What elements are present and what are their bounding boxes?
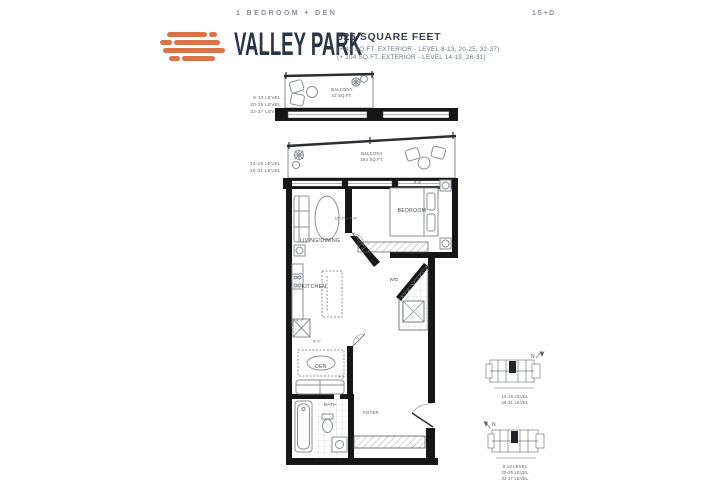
den-label: DEN — [315, 364, 327, 370]
coat-closet — [354, 436, 425, 448]
exterior-note-1: (+ 42 SQ.FT. EXTERIOR - LEVEL 8-13, 20-2… — [337, 46, 567, 53]
laundry-label: W/D — [390, 277, 399, 283]
kitchen-fixtures — [292, 264, 342, 337]
unit-type-heading: 1 BEDROOM + DEN — [236, 10, 337, 17]
exterior-note-2: (+ 104 SQ.FT. EXTERIOR - LEVEL 14-19, 26… — [337, 54, 567, 61]
living-dining-label: LIVING/DINING — [300, 238, 340, 244]
valley-park-logo-icon — [160, 32, 228, 61]
den-width-dimension: 7'-1" — [338, 375, 346, 380]
den-dimension: 8'-2" — [313, 339, 321, 344]
square-feet-title: 625 SQUARE FEET — [337, 31, 567, 43]
bedroom-furniture — [352, 180, 451, 252]
keyplan-upper: N 14-19 LEVEL 26-31 LEVEL — [484, 348, 546, 406]
highlighted-unit — [511, 431, 518, 443]
bedroom-dimension: 8'-8" — [414, 180, 422, 185]
balcony-b-label: BALCONY 104 SQ.FT. — [360, 151, 383, 163]
kitchen-label: KITCHEN — [302, 284, 327, 290]
foyer-label: FOYER — [363, 410, 378, 416]
toilet-icon — [322, 414, 333, 419]
keyplan-drawing: N — [484, 348, 546, 394]
keyplan-drawing: N — [482, 418, 548, 464]
bath-fixtures — [295, 399, 348, 458]
living-dimension: 10'-2" x 9'-9" — [335, 216, 357, 221]
keyplan-lower: N 8-13 LEVEL 20-25 LEVEL 32-37 LEVEL — [482, 418, 548, 482]
north-label: N — [531, 354, 535, 360]
upper-balcony-plan — [275, 71, 458, 121]
bath-label: BATH — [324, 402, 336, 408]
den-furniture — [296, 334, 365, 394]
keyplan-lower-caption: 8-13 LEVEL 20-25 LEVEL 32-37 LEVEL — [482, 464, 548, 482]
north-arrow-icon — [484, 421, 491, 428]
north-arrow-icon — [536, 351, 545, 358]
north-label: N — [492, 422, 496, 428]
living-dining-furniture — [294, 196, 339, 256]
floorplan-sheet: 1 BEDROOM + DEN 1S+D VALLEY PARK 625 SQU… — [0, 0, 721, 496]
highlighted-unit — [509, 361, 516, 373]
entry-door-icon — [412, 413, 433, 427]
kitchen-dimension: 4'-2" — [296, 318, 304, 323]
keyplan-upper-caption: 14-19 LEVEL 26-31 LEVEL — [484, 394, 546, 406]
balcony-a-label: BALCONY 42 SQ.FT. — [331, 87, 352, 99]
laundry-closet — [399, 266, 428, 330]
bedroom-label: BEDROOM — [398, 208, 427, 214]
unit-code: 1S+D — [532, 10, 556, 17]
